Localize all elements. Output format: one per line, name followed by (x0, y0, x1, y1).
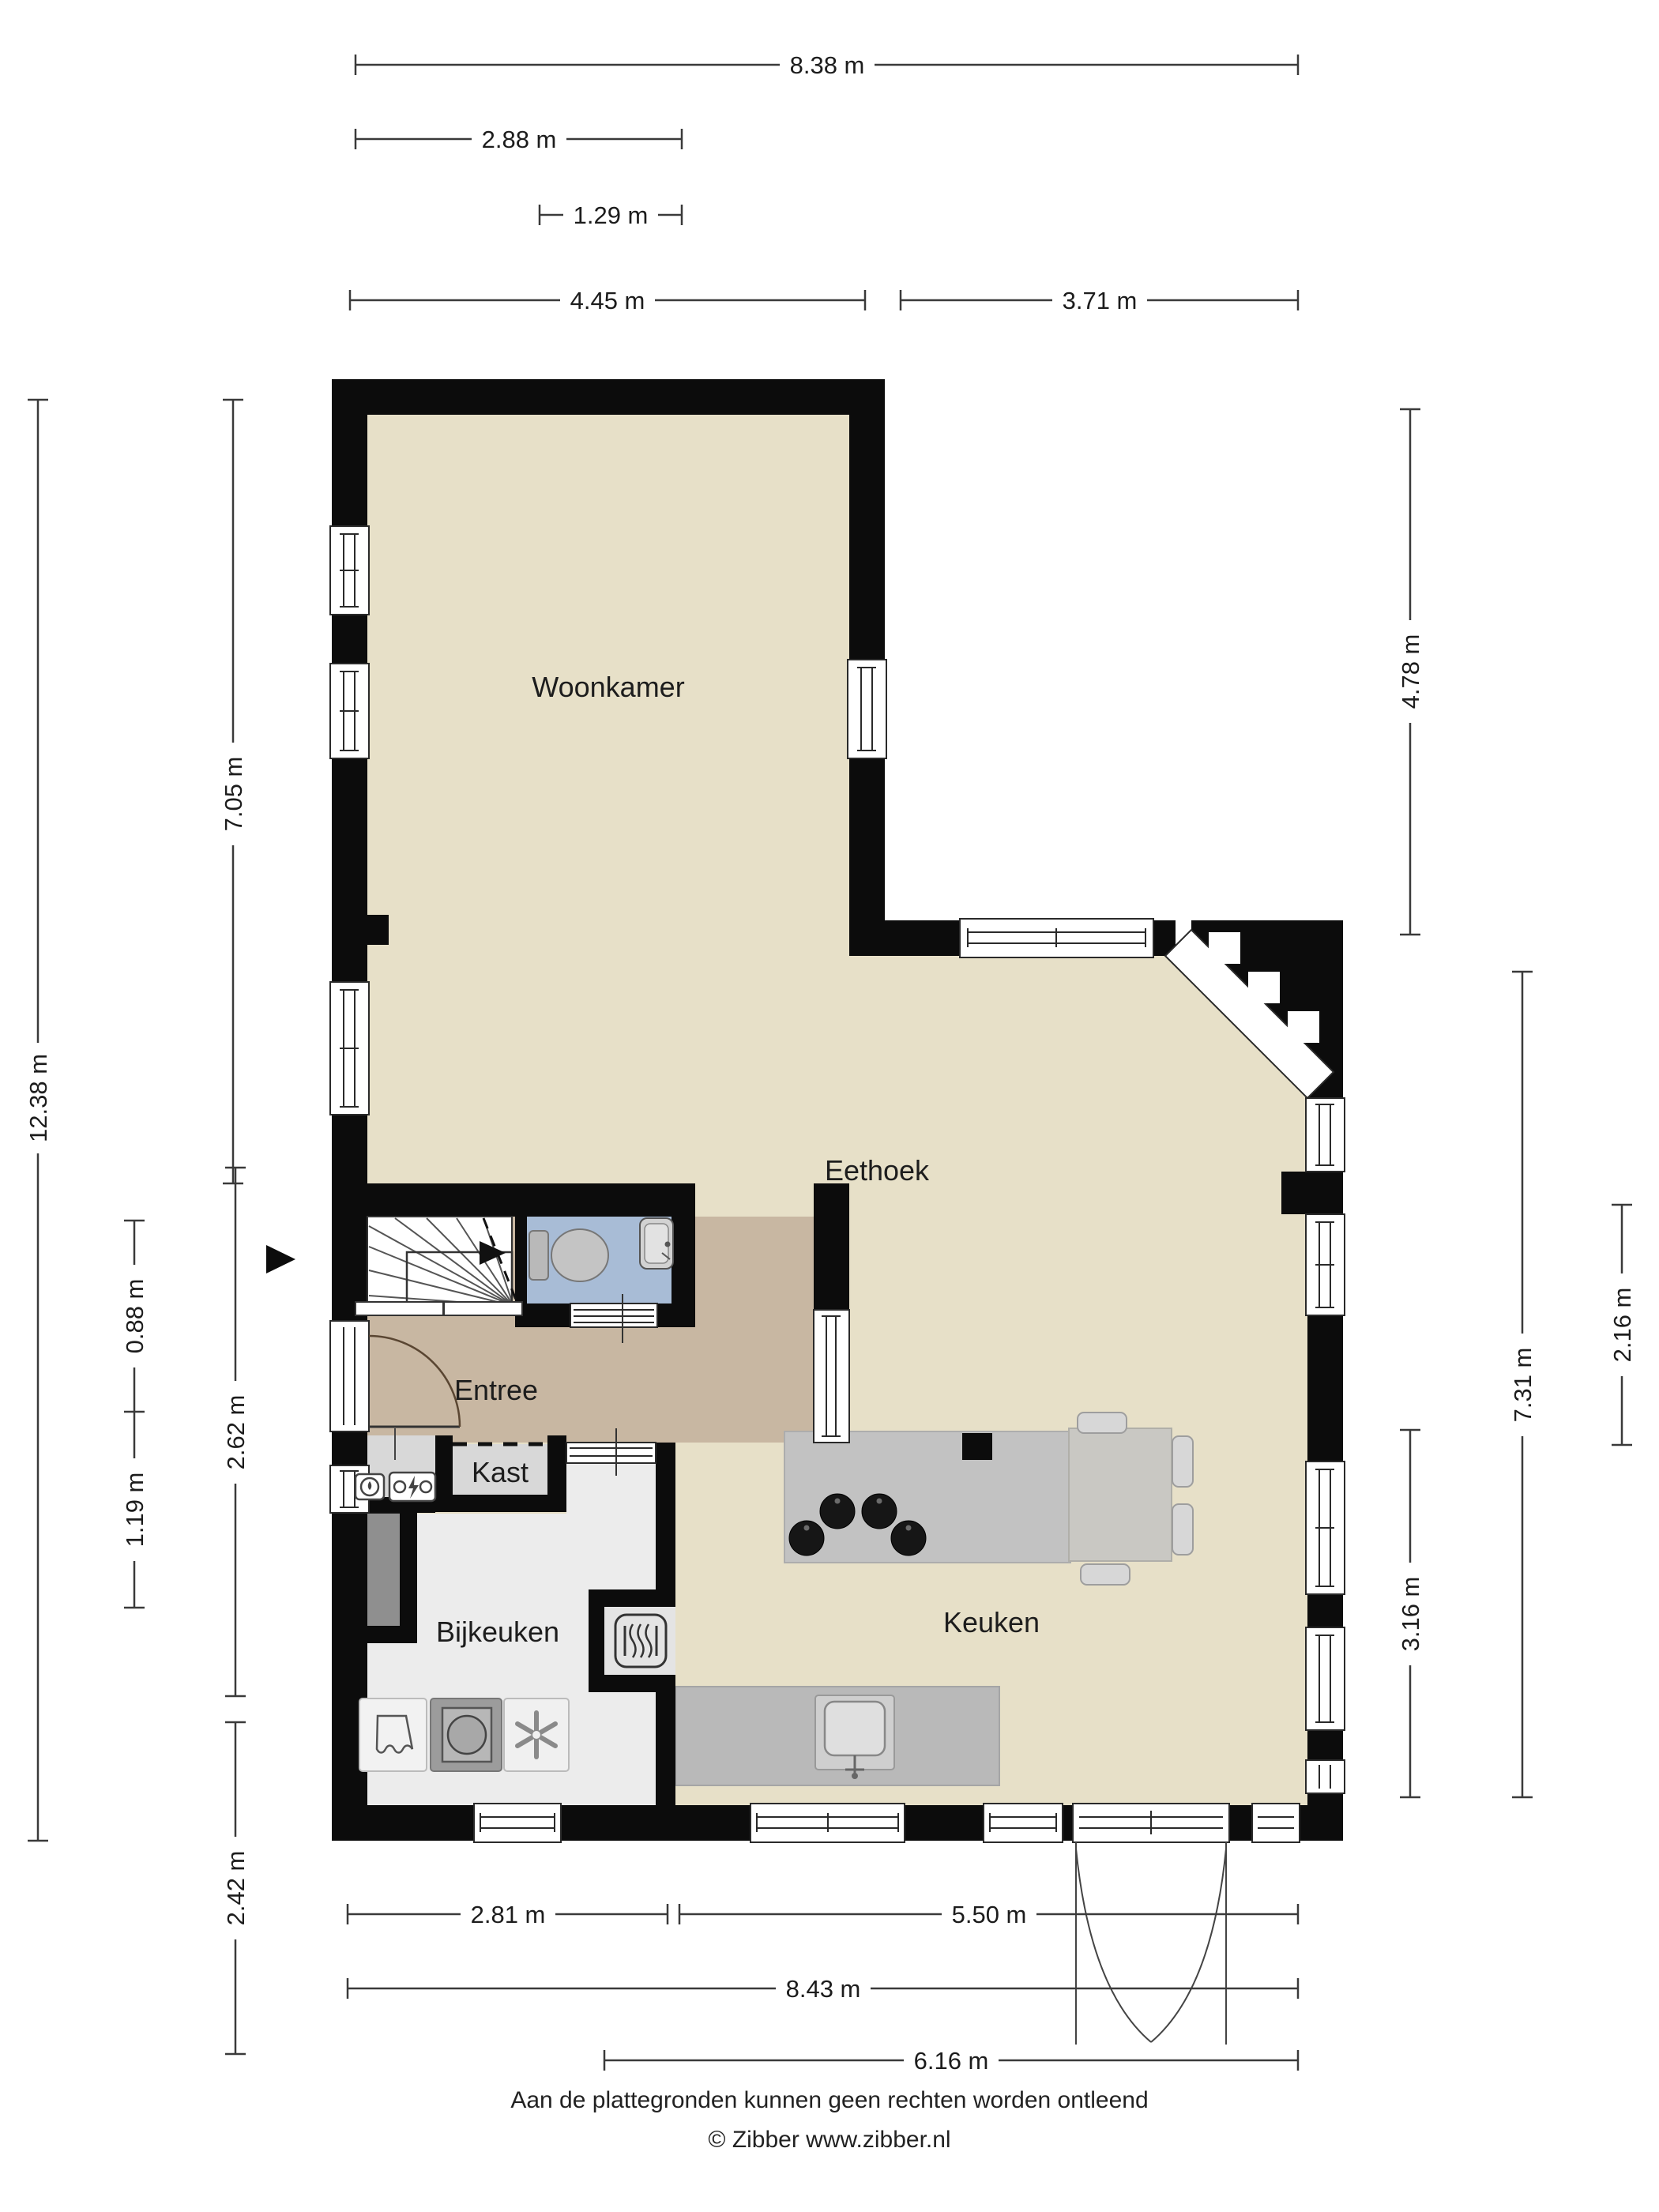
corner-step (1209, 932, 1240, 964)
window-bottom-4 (1252, 1804, 1300, 1842)
svg-text:3.16 m: 3.16 m (1397, 1577, 1424, 1652)
svg-text:12.38 m: 12.38 m (24, 1054, 52, 1142)
dim-top-total: 8.38 m (355, 47, 1298, 82)
wall-bijkeuken-right-lower (656, 1692, 675, 1805)
svg-text:8.43 m: 8.43 m (786, 1975, 861, 2003)
window-bottom-2 (750, 1804, 905, 1842)
svg-text:0.88 m: 0.88 m (121, 1279, 149, 1354)
label-keuken: Keuken (943, 1606, 1040, 1638)
svg-text:2.81 m: 2.81 m (471, 1901, 546, 1928)
label-entree: Entree (454, 1374, 538, 1406)
dining-table (1069, 1428, 1172, 1561)
dim-left-262: 2.62 m (218, 1168, 253, 1696)
freezer-icon (504, 1698, 569, 1771)
door-swing-arc (1151, 1849, 1226, 2042)
wall-toilet-bottom-right (657, 1303, 695, 1327)
chair-icon (1172, 1504, 1193, 1555)
dim-top-445: 4.45 m (350, 283, 865, 318)
stair-landing (355, 1302, 443, 1315)
chair-icon (1081, 1564, 1130, 1585)
dim-left-705: 7.05 m (216, 400, 250, 1183)
washbasin-icon (640, 1218, 673, 1269)
dim-right-216: 2.16 m (1604, 1205, 1639, 1445)
corner-step (1248, 972, 1280, 1003)
footer-disclaimer: Aan de plattegronden kunnen geen rechten… (510, 2087, 1148, 2113)
entree-glazed-partition (814, 1310, 849, 1443)
electric-meter-icon (389, 1473, 435, 1501)
wall-kast-bottom (435, 1495, 566, 1512)
sink-icon (815, 1695, 894, 1779)
wall-bijkeuken-right-upper (656, 1443, 675, 1589)
dim-left-242: 2.42 m (218, 1722, 253, 2054)
wall-toilet-bottom-left (515, 1303, 570, 1327)
svg-text:1.19 m: 1.19 m (121, 1473, 149, 1548)
svg-text:4.78 m: 4.78 m (1397, 634, 1424, 709)
double-door (1073, 1804, 1229, 2045)
label-woonkamer: Woonkamer (532, 671, 684, 703)
dim-bottom-281: 2.81 m (348, 1897, 668, 1932)
dim-bottom-616: 6.16 m (604, 2043, 1298, 2078)
window-right-3 (1306, 1461, 1345, 1594)
wall-stairblock-top (332, 1183, 695, 1217)
wall-stair-toilet-divider (515, 1217, 527, 1303)
wall-top (332, 379, 885, 415)
water-meter-icon (355, 1474, 384, 1499)
floor-bijkeuken-upper (566, 1463, 656, 1515)
window-right-2 (1306, 1214, 1345, 1315)
window-left-2 (330, 664, 369, 758)
footer: Aan de plattegronden kunnen geen rechten… (510, 2087, 1148, 2153)
dim-bottom-843: 8.43 m (348, 1971, 1298, 2006)
chair-icon (1172, 1436, 1193, 1487)
window-right-1 (1306, 1098, 1345, 1172)
wall-right-pier (1281, 1172, 1307, 1214)
dim-top-129: 1.29 m (540, 197, 682, 232)
floorplan-page: Woonkamer Eethoek Entree Kast Bijkeuken … (0, 0, 1659, 2212)
svg-text:4.45 m: 4.45 m (570, 287, 645, 314)
wall-shaft-right (400, 1511, 417, 1642)
wall-niche-bottom (589, 1675, 675, 1692)
dim-top-288: 2.88 m (355, 122, 682, 156)
svg-text:6.16 m: 6.16 m (914, 2047, 989, 2075)
dim-left-1238: 12.38 m (21, 400, 55, 1841)
dim-right-478: 4.78 m (1393, 409, 1428, 935)
svg-text:1.29 m: 1.29 m (574, 201, 649, 229)
window-bottom-3 (984, 1804, 1063, 1842)
window-left-1 (330, 526, 369, 615)
washing-machine-icon (431, 1698, 502, 1771)
floorplan-canvas: Woonkamer Eethoek Entree Kast Bijkeuken … (0, 0, 1659, 2212)
entrance-arrow-icon (266, 1245, 295, 1273)
label-eethoek: Eethoek (825, 1154, 930, 1187)
stair-landing (444, 1302, 522, 1315)
wall-left-pier (367, 915, 389, 945)
label-kast: Kast (472, 1456, 529, 1488)
chair-icon (1078, 1413, 1127, 1433)
dim-top-371: 3.71 m (901, 283, 1298, 318)
svg-text:8.38 m: 8.38 m (790, 51, 865, 79)
svg-text:3.71 m: 3.71 m (1063, 287, 1138, 314)
svg-text:2.16 m: 2.16 m (1608, 1288, 1636, 1363)
window-eethoek-top (960, 919, 1153, 957)
window-left-3 (330, 982, 369, 1115)
wall-entree-right (814, 1183, 849, 1310)
window-right-5 (1306, 1760, 1345, 1793)
island-sink-black (962, 1433, 992, 1460)
dim-left-088: 0.88 m (117, 1221, 152, 1412)
window-bottom-1 (474, 1804, 561, 1842)
wall-shaft-bottom (349, 1626, 417, 1643)
dryer-icon (359, 1698, 427, 1771)
dim-right-316: 3.16 m (1393, 1430, 1428, 1797)
corner-step (1288, 1011, 1319, 1043)
label-bijkeuken: Bijkeuken (436, 1616, 559, 1648)
svg-text:5.50 m: 5.50 m (952, 1901, 1027, 1928)
toilet-icon (529, 1229, 608, 1281)
dim-left-119: 1.19 m (117, 1412, 152, 1608)
svg-text:2.88 m: 2.88 m (482, 126, 557, 153)
door-swing-arc (1076, 1849, 1151, 2042)
dim-bottom-550: 5.50 m (679, 1897, 1298, 1932)
window-right-4 (1306, 1627, 1345, 1730)
dim-right-731: 7.31 m (1505, 972, 1540, 1797)
window-woonkamer-right (848, 660, 886, 758)
svg-text:7.31 m: 7.31 m (1509, 1348, 1537, 1423)
staircase (355, 1217, 522, 1315)
svg-text:2.42 m: 2.42 m (222, 1851, 250, 1926)
floors (349, 415, 1307, 1805)
svg-text:7.05 m: 7.05 m (220, 757, 247, 832)
footer-credit: © Zibber www.zibber.nl (708, 2127, 950, 2153)
svg-text:2.62 m: 2.62 m (222, 1395, 250, 1470)
